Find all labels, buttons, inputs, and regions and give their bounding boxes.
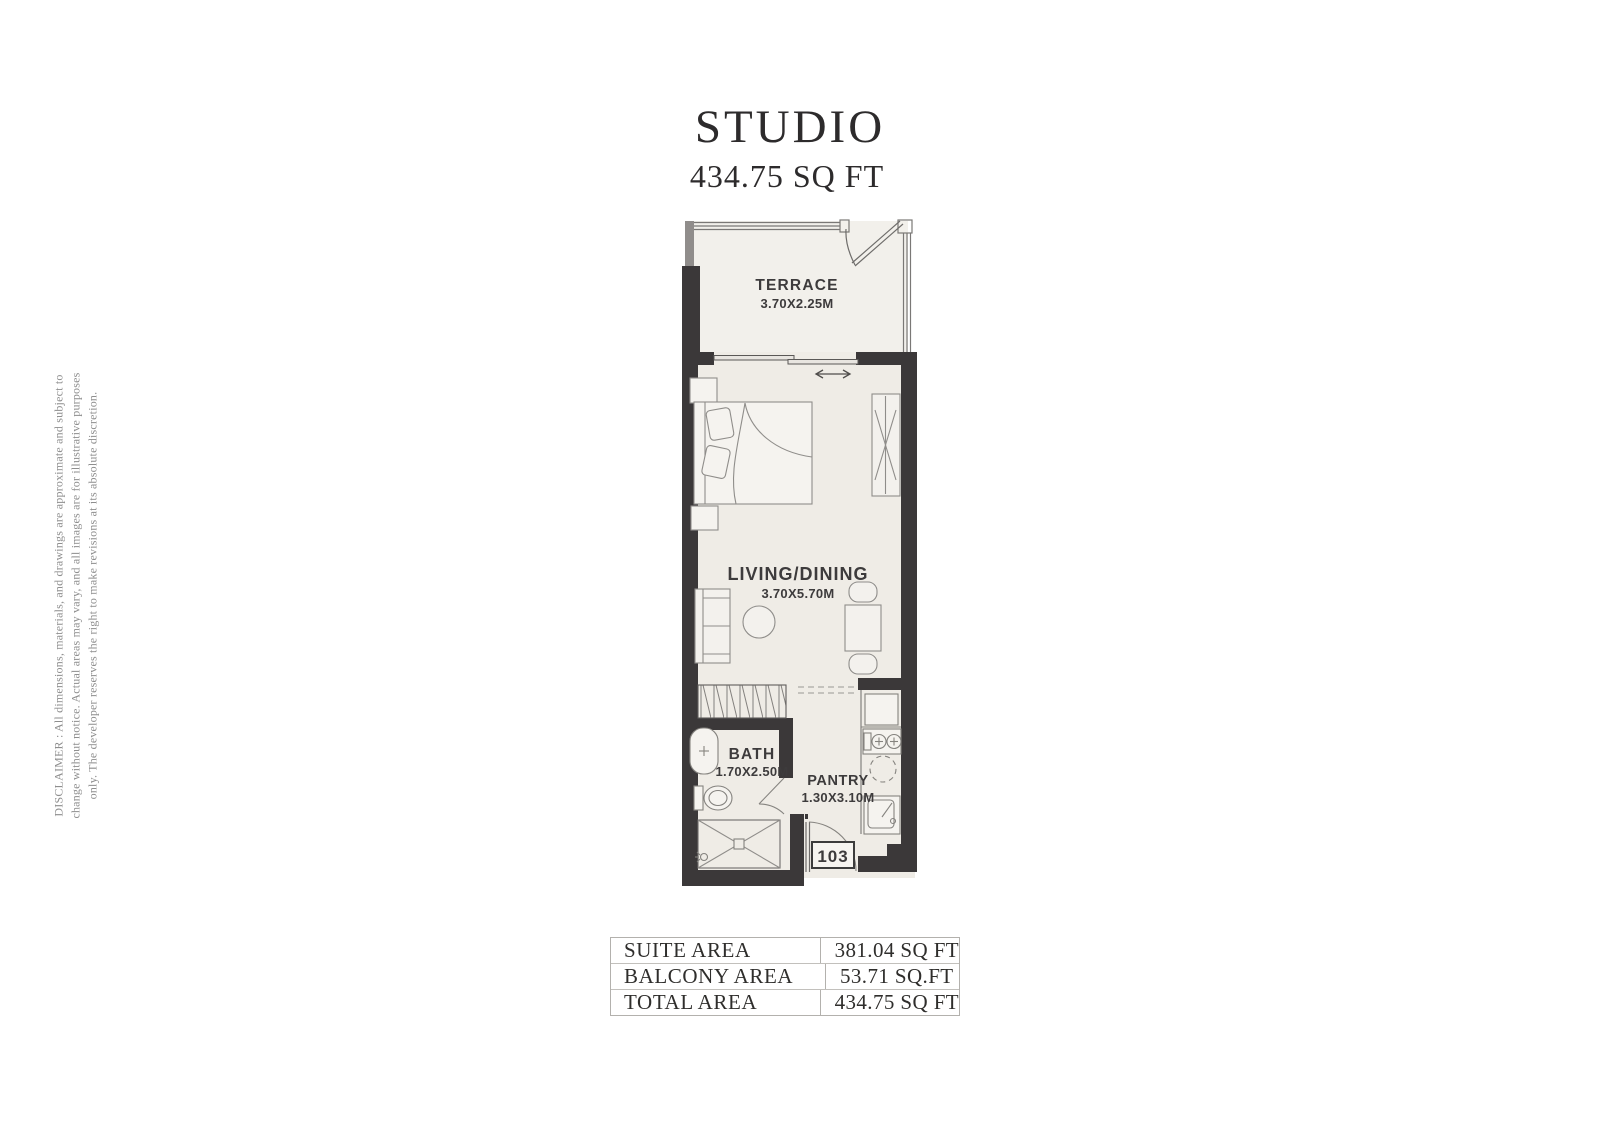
floor-plan: TERRACE 3.70X2.25M LIVING/DINING 3.70X5.… bbox=[640, 205, 940, 905]
page-title: STUDIO bbox=[490, 104, 1090, 151]
shower-drain bbox=[734, 839, 744, 849]
bath-top-partition bbox=[698, 718, 790, 730]
total-area-label: TOTAL AREA bbox=[611, 990, 821, 1015]
bath-dimensions: 1.70X2.50M bbox=[715, 764, 788, 779]
balcony-area-value: 53.71 SQ.FT bbox=[826, 964, 959, 989]
terrace-dimensions: 3.70X2.25M bbox=[760, 296, 833, 311]
disclaimer-line-2: change without notice. Actual areas may … bbox=[68, 361, 85, 831]
disclaimer-line-3: only. The developer reserves the right t… bbox=[85, 361, 102, 831]
area-summary-table: SUITE AREA 381.04 SQ FT BALCONY AREA 53.… bbox=[610, 937, 960, 1016]
floor-areas bbox=[684, 221, 915, 878]
pantry-label: PANTRY bbox=[807, 773, 869, 789]
bottom-wall bbox=[682, 870, 804, 886]
disclaimer-line-1: DISCLAIMER : All dimensions, materials, … bbox=[51, 361, 68, 831]
suite-area-value: 381.04 SQ FT bbox=[821, 938, 959, 963]
dining-chair bbox=[849, 654, 877, 674]
suite-area-label: SUITE AREA bbox=[611, 938, 821, 963]
slider-left-jamb bbox=[698, 352, 714, 365]
terrace-left-wall bbox=[682, 266, 700, 356]
living-dining-dimensions: 3.70X5.70M bbox=[761, 586, 834, 601]
entry-jamb-wall bbox=[790, 814, 804, 872]
terrace-left-stub-wall bbox=[685, 221, 694, 269]
terrace-label: TERRACE bbox=[755, 277, 838, 294]
pillow bbox=[706, 407, 735, 441]
total-area-subtitle: 434.75 SQ FT bbox=[487, 160, 1087, 192]
balcony-area-label: BALCONY AREA bbox=[611, 964, 826, 989]
disclaimer-text: DISCLAIMER : All dimensions, materials, … bbox=[51, 361, 102, 831]
dining-table bbox=[845, 605, 881, 651]
toilet-tank bbox=[694, 786, 703, 810]
bottom-right-wall bbox=[858, 856, 917, 872]
nightstand-top bbox=[690, 378, 717, 403]
coffee-table bbox=[743, 606, 775, 638]
dining-chair bbox=[849, 582, 877, 602]
slider-right-jamb bbox=[856, 352, 901, 365]
table-row: BALCONY AREA 53.71 SQ.FT bbox=[611, 963, 959, 989]
pantry-dimensions: 1.30X3.10M bbox=[801, 790, 874, 805]
living-dining-label: LIVING/DINING bbox=[727, 564, 868, 584]
toilet-bowl bbox=[704, 786, 732, 810]
pantry-top-stub-wall bbox=[858, 678, 901, 690]
bath-label: BATH bbox=[729, 746, 776, 763]
right-wall bbox=[901, 352, 917, 848]
nightstand-bottom bbox=[691, 506, 718, 530]
unit-number: 103 bbox=[817, 847, 848, 866]
total-area-value: 434.75 SQ FT bbox=[821, 990, 959, 1015]
table-row: TOTAL AREA 434.75 SQ FT bbox=[611, 989, 959, 1015]
table-row: SUITE AREA 381.04 SQ FT bbox=[611, 938, 959, 963]
refrigerator bbox=[865, 694, 898, 725]
floorplan-page: STUDIO 434.75 SQ FT DISCLAIMER : All dim… bbox=[0, 0, 1600, 1132]
closet-strip bbox=[698, 685, 786, 718]
bottom-right-step-wall bbox=[887, 844, 917, 858]
